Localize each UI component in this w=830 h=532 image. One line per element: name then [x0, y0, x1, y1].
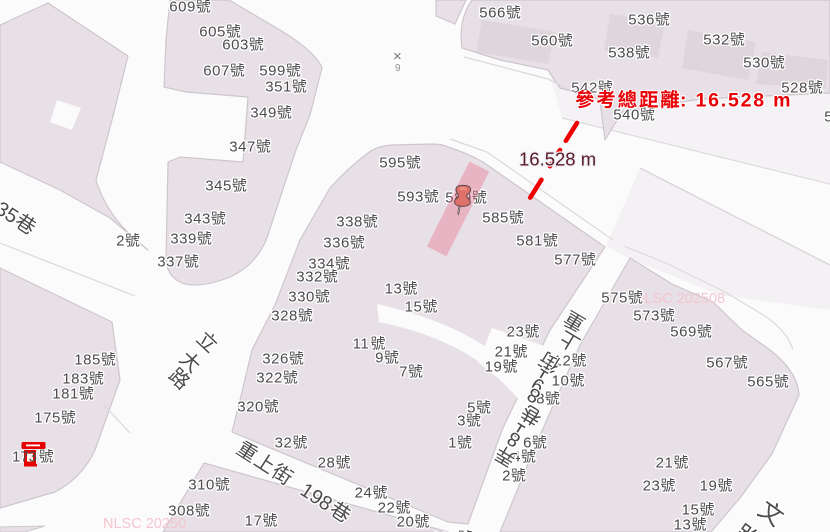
svg-text:585: 585 [482, 210, 509, 227]
svg-text:15: 15 [405, 299, 423, 316]
svg-text:22: 22 [378, 500, 396, 517]
svg-text:575: 575 [601, 290, 628, 307]
svg-text:181: 181 [52, 386, 79, 403]
svg-text:23: 23 [507, 324, 525, 341]
svg-text:13: 13 [385, 281, 403, 298]
svg-text:322: 322 [256, 370, 283, 387]
svg-text:569: 569 [670, 324, 697, 341]
svg-text:577: 577 [554, 252, 581, 269]
svg-text:339: 339 [170, 231, 197, 248]
svg-text:3: 3 [457, 413, 466, 430]
svg-text:526: 526 [824, 109, 830, 126]
svg-text:326: 326 [262, 351, 289, 368]
svg-text:19: 19 [700, 478, 718, 495]
svg-text:1: 1 [448, 435, 457, 452]
svg-text:530: 530 [743, 55, 770, 72]
svg-text:13: 13 [674, 517, 692, 532]
svg-text:2: 2 [116, 233, 125, 250]
svg-text:9: 9 [375, 350, 384, 367]
svg-text:11: 11 [353, 336, 370, 353]
svg-text:347: 347 [229, 139, 256, 156]
svg-text:328: 328 [271, 308, 298, 325]
svg-text:532: 532 [703, 32, 730, 49]
svg-text:21: 21 [656, 455, 674, 472]
svg-text:28: 28 [318, 455, 336, 472]
svg-text:24: 24 [355, 485, 373, 502]
svg-text:560: 560 [531, 33, 558, 50]
svg-text:320: 320 [237, 399, 264, 416]
svg-text:603: 603 [222, 37, 249, 54]
svg-text:16.528 m: 16.528 m [519, 149, 596, 170]
svg-text:32: 32 [275, 435, 293, 452]
svg-text:332: 332 [296, 269, 323, 286]
svg-text:607: 607 [203, 63, 230, 80]
svg-text:330: 330 [288, 289, 315, 306]
svg-text:310: 310 [188, 477, 215, 494]
svg-text:185: 185 [74, 352, 101, 369]
svg-text:NLSC 202508: NLSC 202508 [634, 291, 725, 307]
svg-text:336: 336 [323, 235, 350, 252]
svg-text:538: 538 [608, 45, 635, 62]
svg-text:595: 595 [379, 155, 406, 172]
svg-text:20: 20 [397, 514, 415, 531]
svg-text:: 16.528 m: : 16.528 m [680, 90, 792, 112]
svg-text:19: 19 [485, 359, 503, 376]
svg-text:609: 609 [169, 0, 196, 16]
svg-text:308: 308 [168, 503, 195, 520]
svg-text:175: 175 [34, 410, 61, 427]
svg-text:343: 343 [184, 211, 211, 228]
svg-text:566: 566 [479, 5, 506, 22]
svg-text:10: 10 [552, 373, 570, 390]
svg-text:2: 2 [502, 468, 511, 485]
svg-text:173: 173 [12, 449, 37, 466]
svg-text:345: 345 [205, 178, 232, 195]
svg-text:540: 540 [613, 107, 640, 124]
svg-text:581: 581 [516, 233, 543, 250]
svg-text:338: 338 [336, 214, 363, 231]
svg-text:17: 17 [245, 513, 263, 530]
svg-text:349: 349 [250, 105, 277, 122]
svg-text:567: 567 [706, 355, 733, 372]
svg-text:23: 23 [643, 478, 661, 495]
svg-text:7: 7 [399, 364, 408, 381]
svg-text:593: 593 [397, 189, 424, 206]
svg-text:536: 536 [628, 12, 655, 29]
svg-text:9: 9 [395, 63, 401, 74]
svg-text:337: 337 [157, 254, 184, 271]
svg-text:351: 351 [265, 79, 292, 96]
svg-text:573: 573 [633, 308, 660, 325]
svg-text:565: 565 [747, 374, 774, 391]
svg-text:599: 599 [259, 63, 286, 80]
